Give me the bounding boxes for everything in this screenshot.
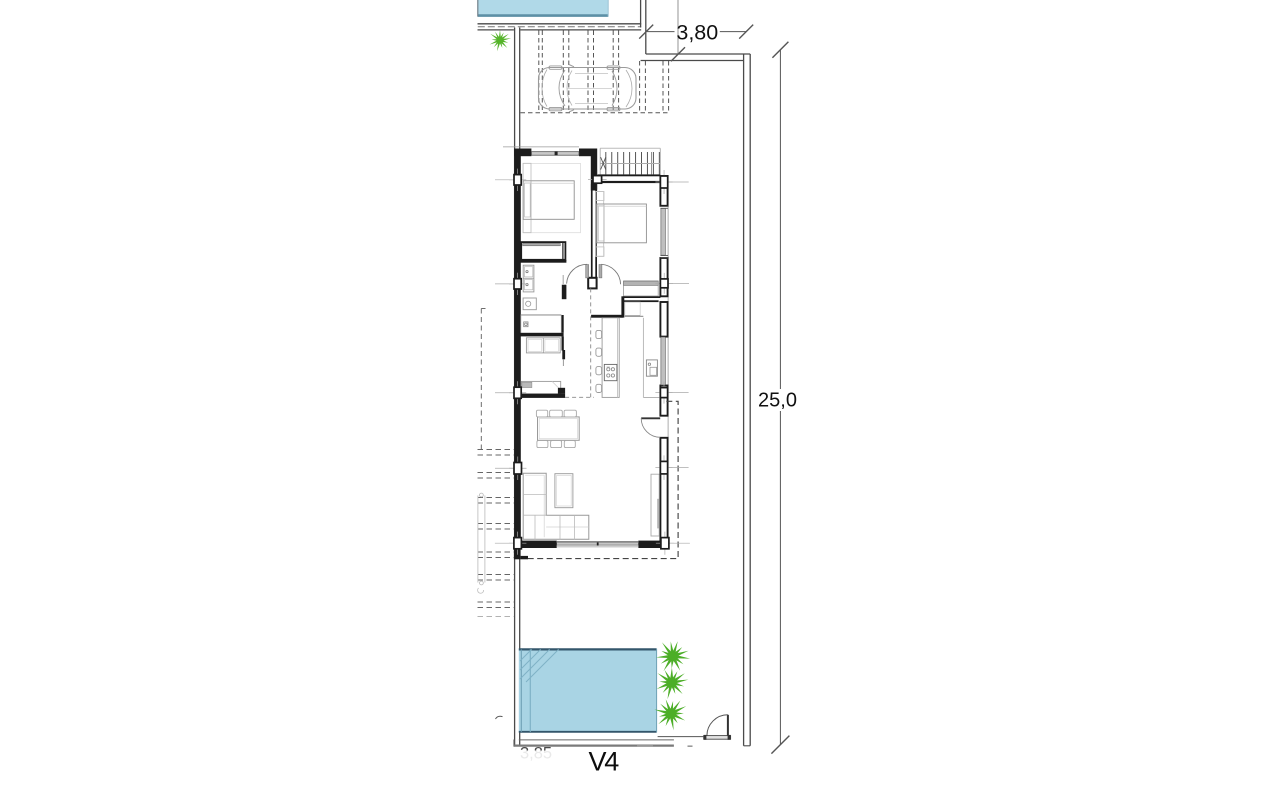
svg-text:V4: V4 — [588, 747, 619, 777]
svg-text:25,0: 25,0 — [758, 390, 797, 412]
svg-text:3,80: 3,80 — [676, 21, 718, 45]
